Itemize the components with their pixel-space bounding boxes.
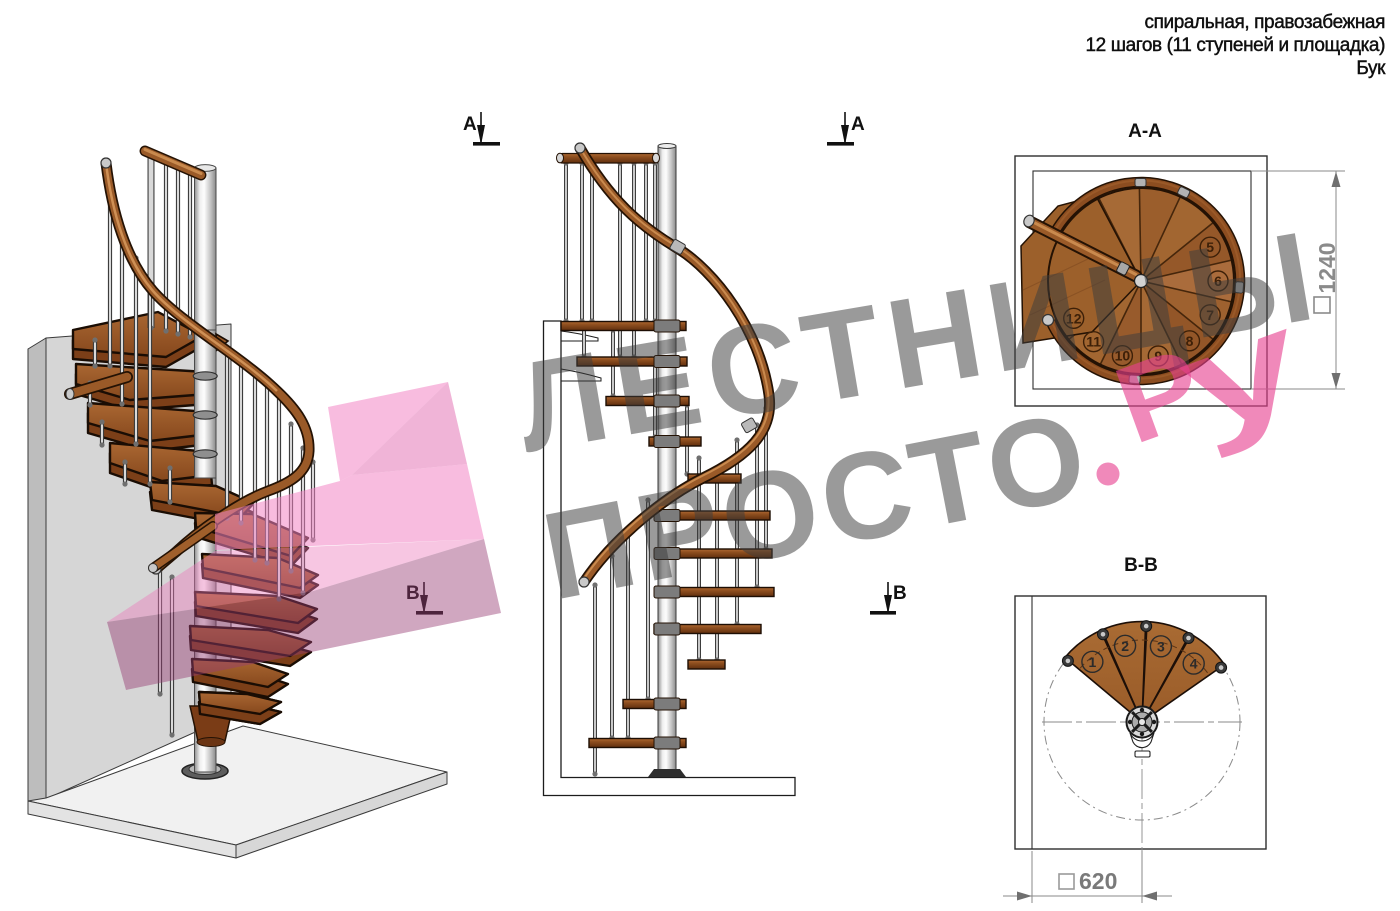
svg-text:В-В: В-В (1124, 555, 1158, 576)
svg-text:А: А (463, 114, 477, 135)
svg-text:2: 2 (1121, 638, 1129, 654)
svg-text:Бук: Бук (1356, 58, 1386, 79)
svg-text:12 шагов (11 ступеней и площад: 12 шагов (11 ступеней и площадка) (1086, 35, 1386, 56)
svg-text:спиральная, правозабежная: спиральная, правозабежная (1145, 12, 1385, 33)
svg-text:3: 3 (1157, 638, 1165, 654)
svg-text:620: 620 (1079, 868, 1117, 894)
svg-text:А: А (851, 114, 865, 135)
svg-text:В: В (893, 583, 907, 604)
svg-text:1: 1 (1089, 654, 1097, 670)
svg-text:А-А: А-А (1128, 121, 1162, 142)
svg-text:4: 4 (1190, 656, 1198, 672)
